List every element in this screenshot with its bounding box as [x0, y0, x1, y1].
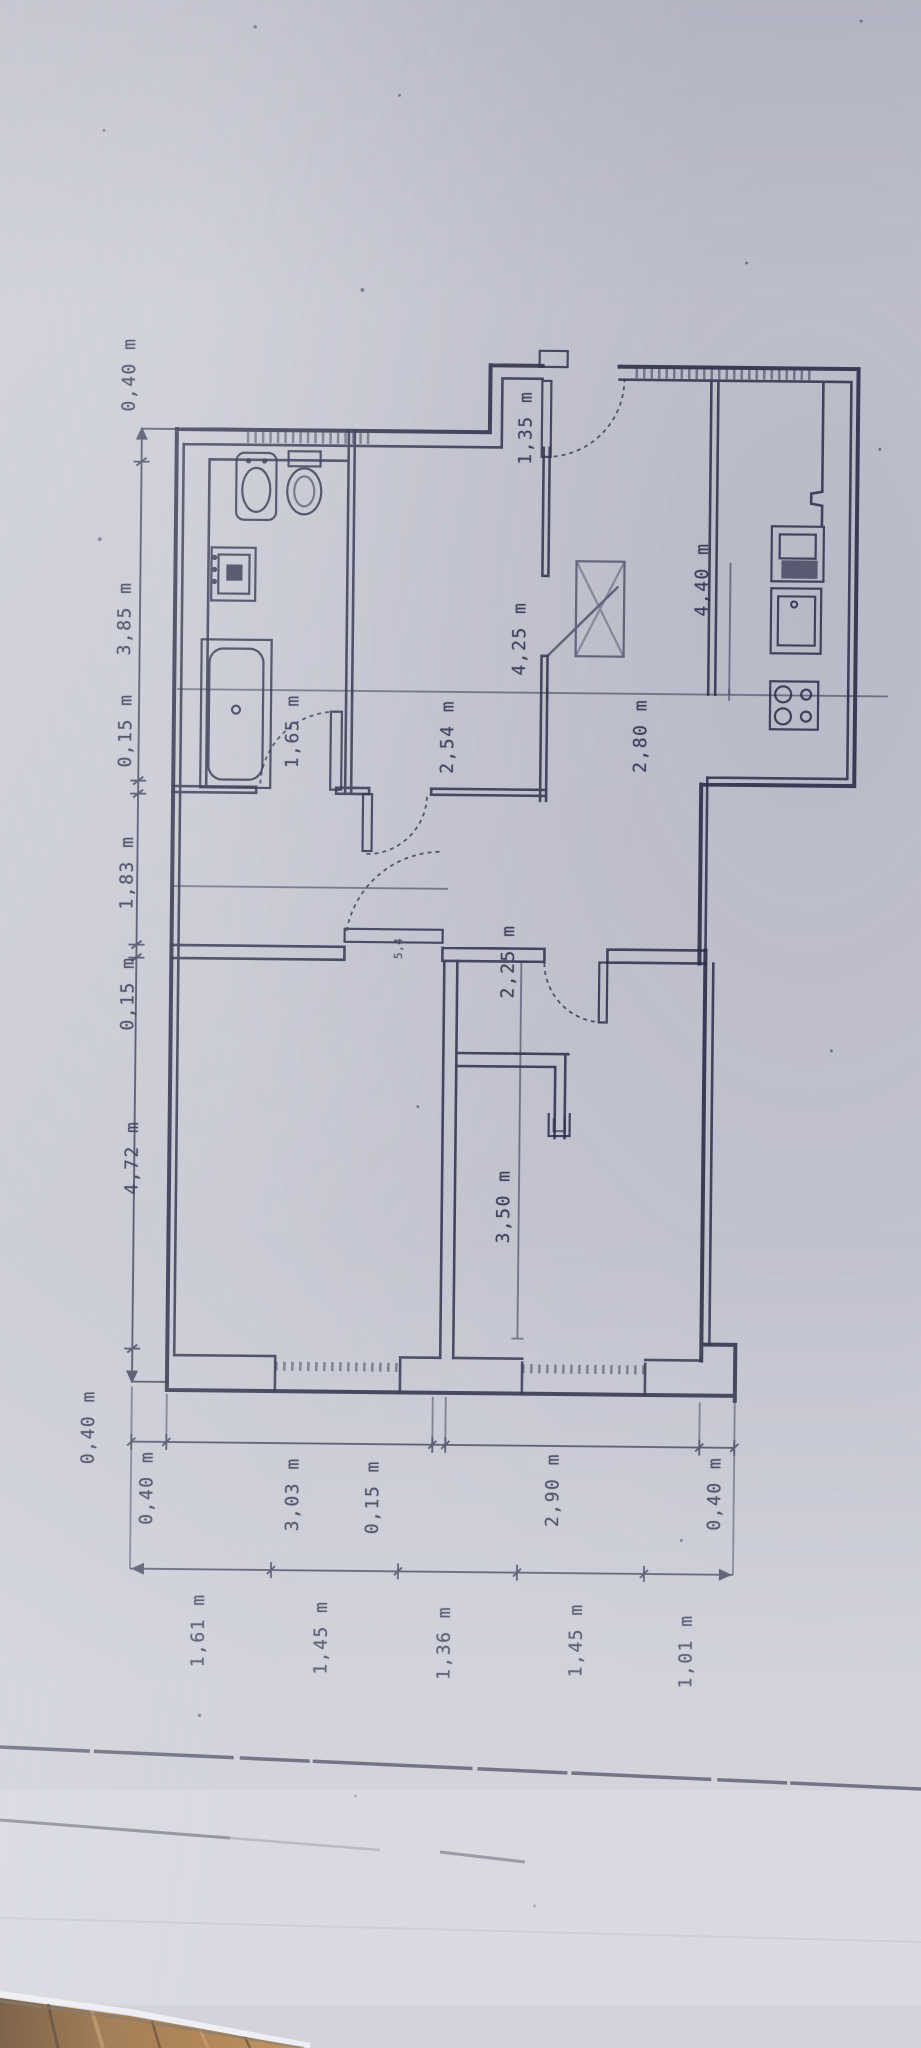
entrance-door-arc: [546, 379, 625, 458]
washing-machine-fixture: [211, 547, 256, 600]
dim-label-bedroom-upper: 2,25 m: [497, 924, 519, 998]
entrance-door-leaf: [542, 381, 552, 457]
dim-label-bottom-inner-3: 0,15 m: [362, 1460, 384, 1534]
room-door-leaf: [363, 794, 373, 851]
sink-fixture: [236, 453, 277, 520]
doors: [258, 348, 627, 1023]
corridor-extra-line: [172, 886, 448, 889]
corridor-door-arc: [347, 851, 441, 932]
fridge-fixture: [771, 526, 824, 582]
dim-label-bottom-outer-3: 1,36 m: [433, 1606, 455, 1680]
kitchen-sink-fixture: [771, 588, 822, 654]
hall-stair-hatch: [548, 561, 625, 657]
window-bottom-left: [275, 1366, 400, 1367]
bedroom-door-arc: [544, 962, 604, 1023]
dim-label-left-5: 0,15 m: [117, 956, 139, 1030]
dim-label-left-6: 4,72 m: [121, 1120, 143, 1194]
inner-walls: [167, 375, 852, 1397]
closet-fixture: [549, 1113, 570, 1136]
bedroom-divider-wall: [440, 961, 457, 1358]
dim-label-room-width: 2,54 m: [437, 700, 459, 774]
dim-label-bottom-outer-2: 1,45 m: [310, 1600, 332, 1674]
hall-door-diagonal: [548, 586, 619, 657]
interior-dimension-line-vertical: [511, 962, 527, 1339]
dim-label-bottom-outer-5: 1,01 m: [675, 1614, 697, 1688]
windows: [237, 369, 813, 1371]
dim-label-kitchen-length: 4,40 m: [691, 542, 713, 616]
bottom-outer-dimension-line: [130, 1561, 733, 1583]
dim-label-bottom-inner-1: 0,40 m: [136, 1451, 158, 1525]
room-length-dim-line: [729, 563, 730, 695]
dim-label-bedroom-length: 3,50 m: [493, 1169, 515, 1243]
bathtub-fixture: [200, 639, 272, 788]
dim-label-bathroom-width: 1,65 m: [282, 694, 304, 768]
dim-label-bottom-inner-5: 0,40 m: [704, 1457, 726, 1531]
kitchen-step: [811, 384, 823, 525]
bathroom-door-leaf: [330, 712, 342, 790]
outer-walls: [167, 362, 859, 1402]
window-top-right: [636, 373, 814, 375]
dim-label-bottom-inner-4: 2,90 m: [542, 1453, 564, 1527]
window-bottom-right: [522, 1369, 645, 1370]
witness-lines: [130, 1387, 735, 1575]
corridor-walls: [171, 945, 705, 964]
dim-label-left-7: 0,40 m: [78, 1390, 100, 1464]
dim-label-room-length: 4,25 m: [509, 601, 531, 675]
room-door-arc: [366, 794, 427, 855]
floor-plan-drawing: 0,40 m 3,85 m 0,15 m 1,83 m 0,15 m 4,72 …: [0, 0, 921, 2048]
dim-label-left-3: 0,15 m: [115, 693, 137, 767]
dim-label-left-4: 1,83 m: [116, 835, 138, 909]
door-annotation: 5,4: [392, 938, 405, 960]
dim-label-left-1: 0,40 m: [119, 337, 141, 411]
dim-label-bottom-outer-1: 1,61 m: [187, 1593, 209, 1667]
dim-label-hall-width: 2,80 m: [630, 699, 652, 773]
stove-fixture: [770, 681, 819, 730]
bathroom-walls: [173, 429, 550, 796]
floor-plan-photo: 0,40 m 3,85 m 0,15 m 1,83 m 0,15 m 4,72 …: [0, 0, 921, 2048]
closet-walls: [458, 1053, 569, 1138]
window-top-left: [247, 437, 372, 438]
bedroom-door-leaf: [599, 962, 608, 1022]
dim-label-bottom-outer-4: 1,45 m: [565, 1603, 587, 1677]
dim-label-bottom-inner-2: 3,03 m: [282, 1457, 304, 1531]
dim-label-left-2: 3,85 m: [114, 581, 136, 655]
bathroom-fixtures: [200, 450, 322, 788]
dim-label-entry-width: 1,35 m: [515, 391, 537, 465]
